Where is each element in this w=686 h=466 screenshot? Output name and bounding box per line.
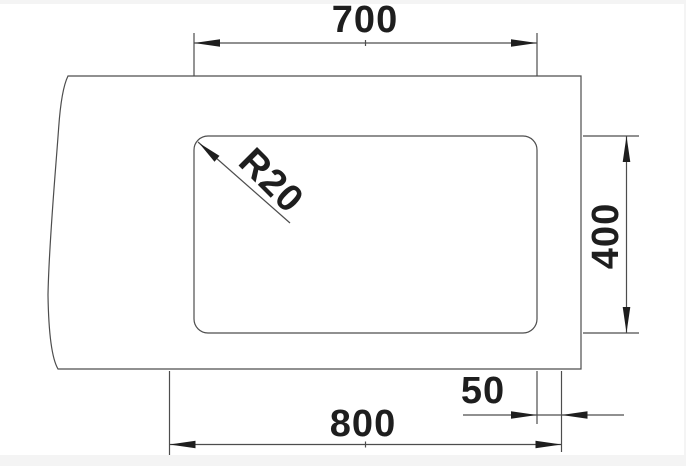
arrow-right-icon (511, 411, 537, 419)
arrow-down-icon (623, 307, 631, 333)
arrow-right-icon (536, 441, 562, 449)
dimension-label-800: 800 (330, 405, 396, 443)
arrow-left-icon (194, 39, 220, 47)
drawing-page: 700 400 R20 50 800 (0, 0, 686, 466)
dimension-drawing (0, 0, 686, 466)
arrow-left-icon (170, 441, 196, 449)
arrow-up-left-icon (199, 143, 220, 162)
dimension-label-400: 400 (587, 203, 625, 269)
arrow-right-icon (511, 39, 537, 47)
countertop-outline (48, 76, 581, 369)
dimension-label-700: 700 (332, 1, 398, 39)
dimension-label-50: 50 (461, 372, 505, 410)
arrow-up-icon (623, 136, 631, 162)
arrow-left-icon (562, 411, 588, 419)
